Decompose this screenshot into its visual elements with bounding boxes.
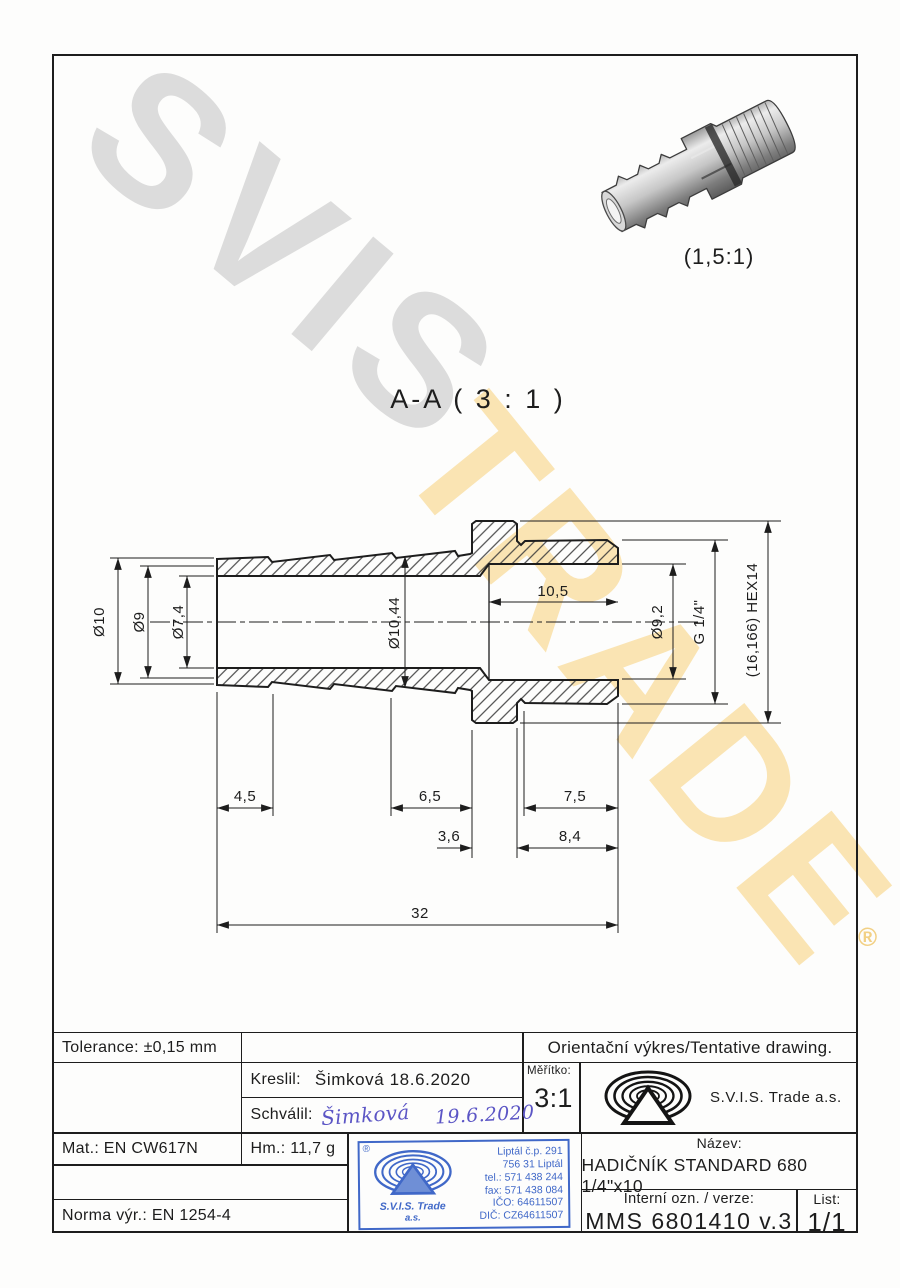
stamp-logo-block: ® S.V.I.S. Trade a.s. [360,1142,466,1228]
stamp-registered-icon: ® [363,1144,370,1155]
kreslil-value: Šimková 18.6.2020 [315,1070,471,1090]
dim-label-d74: Ø7,4 [170,605,187,640]
bottom-wall-hatched [217,668,618,723]
pictorial-scale-label: (1,5:1) [684,244,755,269]
meritko-label: Měřítko: [527,1065,571,1077]
interni-cell: Interní ozn. / verze: MMS 6801410 v.3 [581,1189,798,1234]
dimension-lines [110,521,781,933]
pictorial-fitting [592,93,802,245]
meritko-value: 3:1 [527,1083,580,1114]
stamp-line-address: Liptál č.p. 291 [497,1145,563,1158]
dim-label-d92: Ø9,2 [649,605,666,640]
stamp-line-dic: DIČ: CZ64611507 [479,1209,563,1223]
schvalil-date: 19.6.2020 [435,1101,535,1128]
empty-cell-3 [52,1164,349,1200]
stamp-company: S.V.I.S. Trade [380,1201,446,1213]
list-value: 1/1 [807,1207,846,1238]
dim-label-hex: (16,166) HEX14 [744,563,761,678]
interni-label: Interní ozn. / verze: [624,1191,754,1207]
svis-logo-black [602,1069,694,1127]
kreslil-cell: Kreslil: Šimková 18.6.2020 [241,1062,524,1099]
stamp-line-tel: tel.: 571 438 244 [485,1171,563,1185]
interni-value: MMS 6801410 v.3 [585,1208,792,1235]
schvalil-signature: Šimková [320,1100,410,1130]
dim-label-105: 10,5 [537,583,568,600]
weight-cell: Hm.: 11,7 g [241,1132,349,1166]
pictorial-body [597,93,803,243]
section-view: Ø10 Ø9 Ø7,4 Ø10,44 10,5 Ø9,2 G 1/4" (16,… [91,521,781,933]
dim-label-d9: Ø9 [131,611,148,632]
nazev-label: Název: [697,1135,742,1151]
dim-label-45: 4,5 [234,788,256,805]
tentative-drawing-cell: Orientační výkres/Tentative drawing. [522,1032,858,1063]
stamp-company-suffix: a.s. [405,1212,421,1223]
list-cell: List: 1/1 [796,1189,858,1234]
empty-cell-2 [52,1062,242,1134]
nazev-cell: Název: HADIČNÍK STANDARD 680 1/4"x10 [581,1132,859,1190]
norma-cell: Norma výr.: EN 1254-4 [52,1199,349,1234]
stamp-address-block: Liptál č.p. 291 756 31 Liptál tel.: 571 … [465,1141,569,1227]
meritko-cell: Měřítko: 3:1 [522,1062,581,1134]
tolerance-cell: Tolerance: ±0,15 mm [52,1032,242,1063]
schvalil-cell: Schválil: Šimková 19.6.2020 [241,1097,524,1134]
dim-label-d1044: Ø10,44 [386,597,403,649]
company-cell: S.V.I.S. Trade a.s. [579,1062,858,1134]
dim-label-84: 8,4 [559,828,581,845]
top-wall-hatched [217,521,618,576]
dim-label-g14: G 1/4" [691,599,708,644]
stamp-line-city: 756 31 Liptál [503,1158,563,1171]
company-name: S.V.I.S. Trade a.s. [710,1089,842,1106]
schvalil-label: Schválil: [251,1106,313,1124]
technical-drawing: (1,5:1) A-A ( 3 : 1 ) [0,0,900,1030]
drawing-sheet: SVIS TRADE ® [0,0,900,1288]
dim-label-65: 6,5 [419,788,441,805]
company-stamp: ® S.V.I.S. Trade a.s. Liptál č.p. 291 75… [358,1139,571,1230]
stamp-line-fax: fax: 571 438 084 [485,1183,563,1197]
dim-label-75: 7,5 [564,788,586,805]
dim-label-36: 3,6 [438,828,460,845]
kreslil-label: Kreslil: [251,1071,301,1089]
dim-label-d10: Ø10 [91,607,108,637]
material-cell: Mat.: EN CW617N [52,1132,242,1166]
stamp-line-ico: IČO: 64611507 [493,1196,564,1210]
section-title: A-A ( 3 : 1 ) [390,384,566,414]
dim-label-32: 32 [411,905,429,922]
list-label: List: [813,1191,840,1207]
svis-logo-blue [370,1148,455,1201]
empty-cell-1 [241,1032,524,1063]
